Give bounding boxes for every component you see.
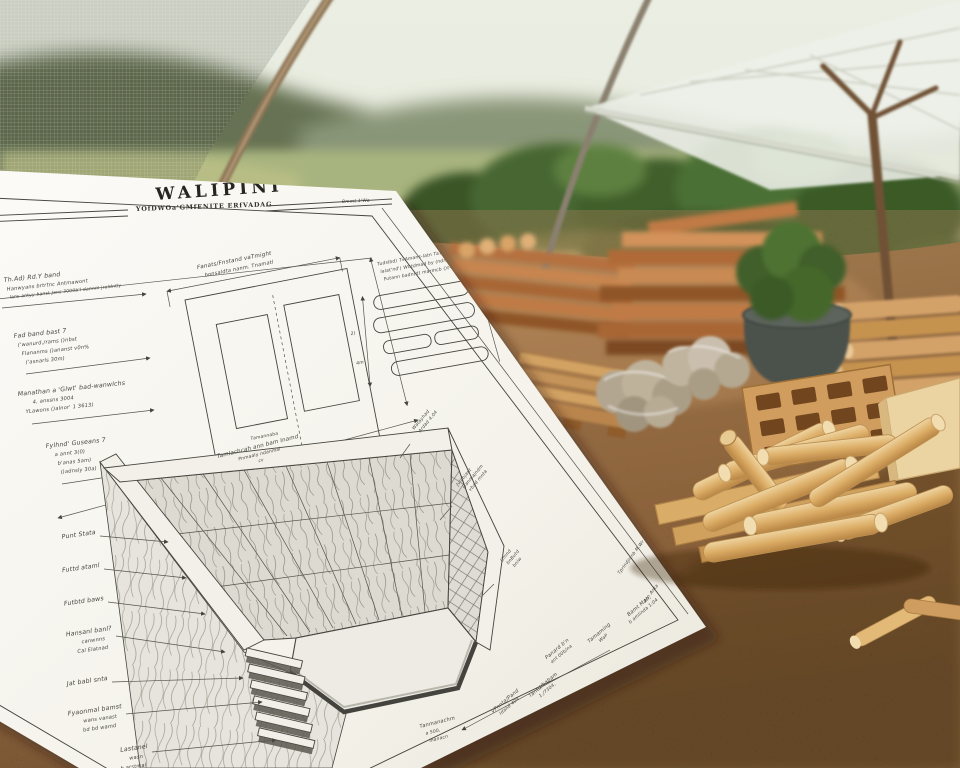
photo-scene: WALIPINI YOfDWOa'GMfENITE ERfVADAG Bmmt … xyxy=(0,0,960,768)
scene-canvas: WALIPINI YOfDWOa'GMfENITE ERfVADAG Bmmt … xyxy=(0,0,960,768)
wood-shadow xyxy=(630,546,930,590)
detail-dim-tick: 2) xyxy=(350,330,356,337)
